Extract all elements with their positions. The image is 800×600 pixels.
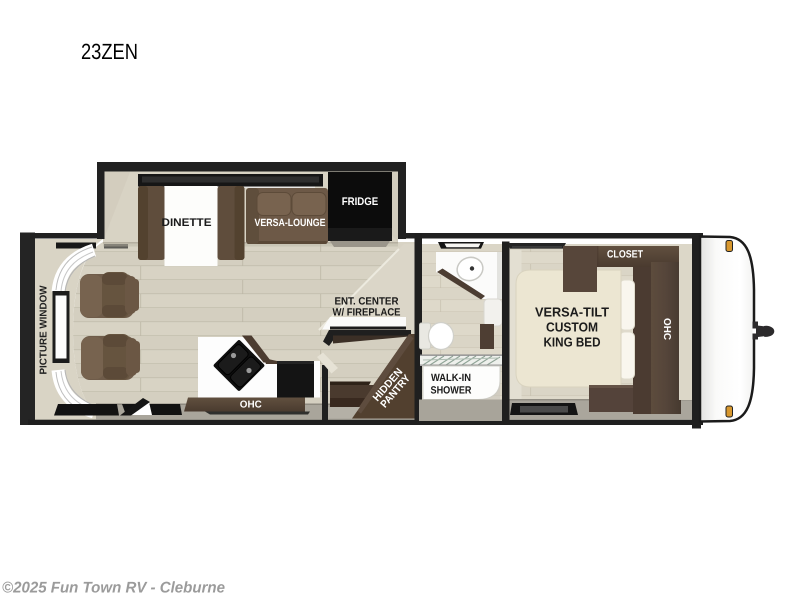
svg-text:FRIDGE: FRIDGE [342, 196, 379, 208]
svg-text:KING BED: KING BED [544, 335, 601, 350]
svg-text:SHOWER: SHOWER [431, 385, 472, 397]
svg-text:VERSA-LOUNGE: VERSA-LOUNGE [255, 217, 326, 229]
svg-text:OHC: OHC [661, 318, 672, 340]
svg-text:23ZEN: 23ZEN [81, 39, 138, 64]
svg-text:VERSA-TILT: VERSA-TILT [535, 305, 609, 320]
svg-text:DINETTE: DINETTE [162, 217, 212, 229]
svg-text:PICTURE WINDOW: PICTURE WINDOW [39, 285, 50, 375]
svg-text:W/ FIREPLACE: W/ FIREPLACE [333, 307, 401, 319]
svg-text:CUSTOM: CUSTOM [546, 320, 598, 335]
svg-text:OHC: OHC [240, 400, 262, 411]
svg-text:CLOSET: CLOSET [607, 249, 643, 261]
svg-text:WALK-IN: WALK-IN [431, 372, 471, 384]
svg-text:©2025 Fun Town RV - Cleburne: ©2025 Fun Town RV - Cleburne [2, 580, 225, 597]
